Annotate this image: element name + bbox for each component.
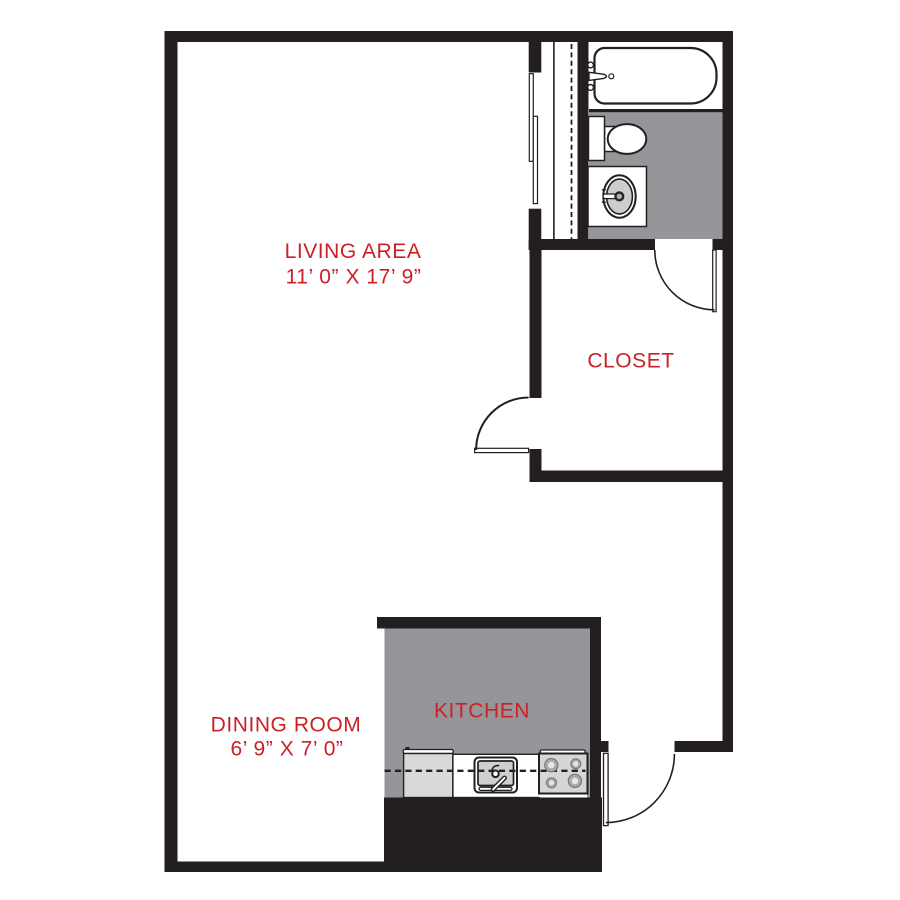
svg-text:KITCHEN: KITCHEN bbox=[434, 700, 530, 723]
svg-text:CLOSET: CLOSET bbox=[587, 350, 674, 373]
svg-text:DINING ROOM: DINING ROOM bbox=[211, 714, 362, 737]
svg-text:11’ 0” X 17’ 9”: 11’ 0” X 17’ 9” bbox=[286, 266, 422, 289]
svg-text:LIVING AREA: LIVING AREA bbox=[285, 240, 422, 263]
svg-text:6’ 9” X 7’ 0”: 6’ 9” X 7’ 0” bbox=[231, 738, 344, 761]
